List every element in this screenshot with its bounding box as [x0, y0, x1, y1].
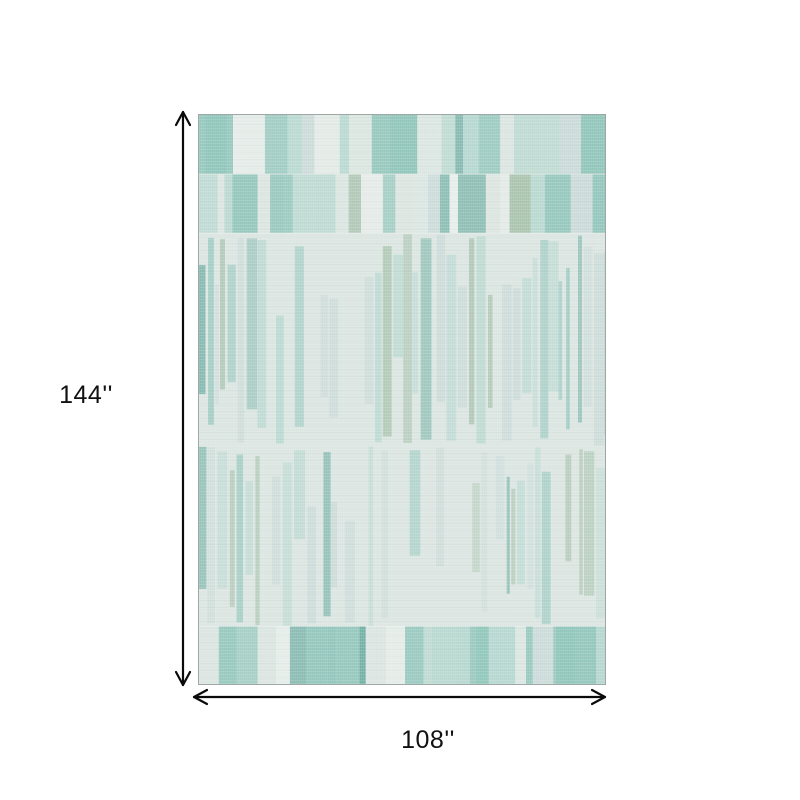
- height-dimension-arrow: [176, 112, 190, 685]
- product-dimension-diagram: 144'' 108'': [0, 0, 800, 800]
- height-dimension-label: 144'': [36, 381, 136, 410]
- width-dimension-arrow: [194, 690, 605, 704]
- rug-image: [198, 114, 606, 685]
- rug-pattern: [199, 115, 605, 684]
- width-dimension-label: 108'': [368, 726, 488, 755]
